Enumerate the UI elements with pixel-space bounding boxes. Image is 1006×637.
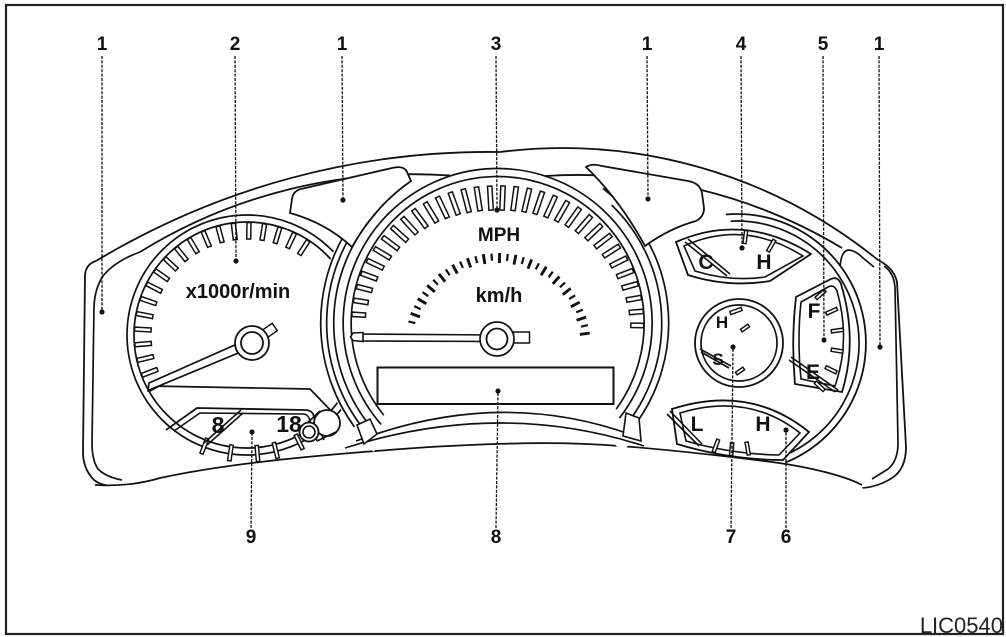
svg-text:4: 4 (736, 34, 747, 55)
svg-text:7: 7 (726, 527, 737, 548)
svg-text:H: H (716, 313, 728, 332)
svg-text:F: F (808, 300, 821, 323)
svg-text:L: L (691, 413, 704, 436)
svg-text:1: 1 (97, 34, 108, 55)
svg-text:18: 18 (276, 411, 302, 437)
svg-text:MPH: MPH (478, 225, 520, 246)
svg-text:x1000r/min: x1000r/min (186, 281, 291, 303)
svg-text:1: 1 (642, 34, 653, 55)
svg-text:9: 9 (246, 527, 257, 548)
svg-text:H: H (756, 251, 771, 274)
svg-text:3: 3 (491, 34, 502, 55)
svg-text:2: 2 (230, 34, 241, 55)
svg-text:5: 5 (818, 34, 829, 55)
svg-text:8: 8 (491, 527, 502, 548)
svg-text:1: 1 (874, 34, 885, 55)
svg-text:H: H (755, 413, 770, 436)
svg-text:LIC0540: LIC0540 (920, 613, 1003, 637)
svg-text:1: 1 (337, 34, 348, 55)
svg-text:6: 6 (781, 527, 792, 548)
svg-text:km/h: km/h (476, 285, 523, 307)
